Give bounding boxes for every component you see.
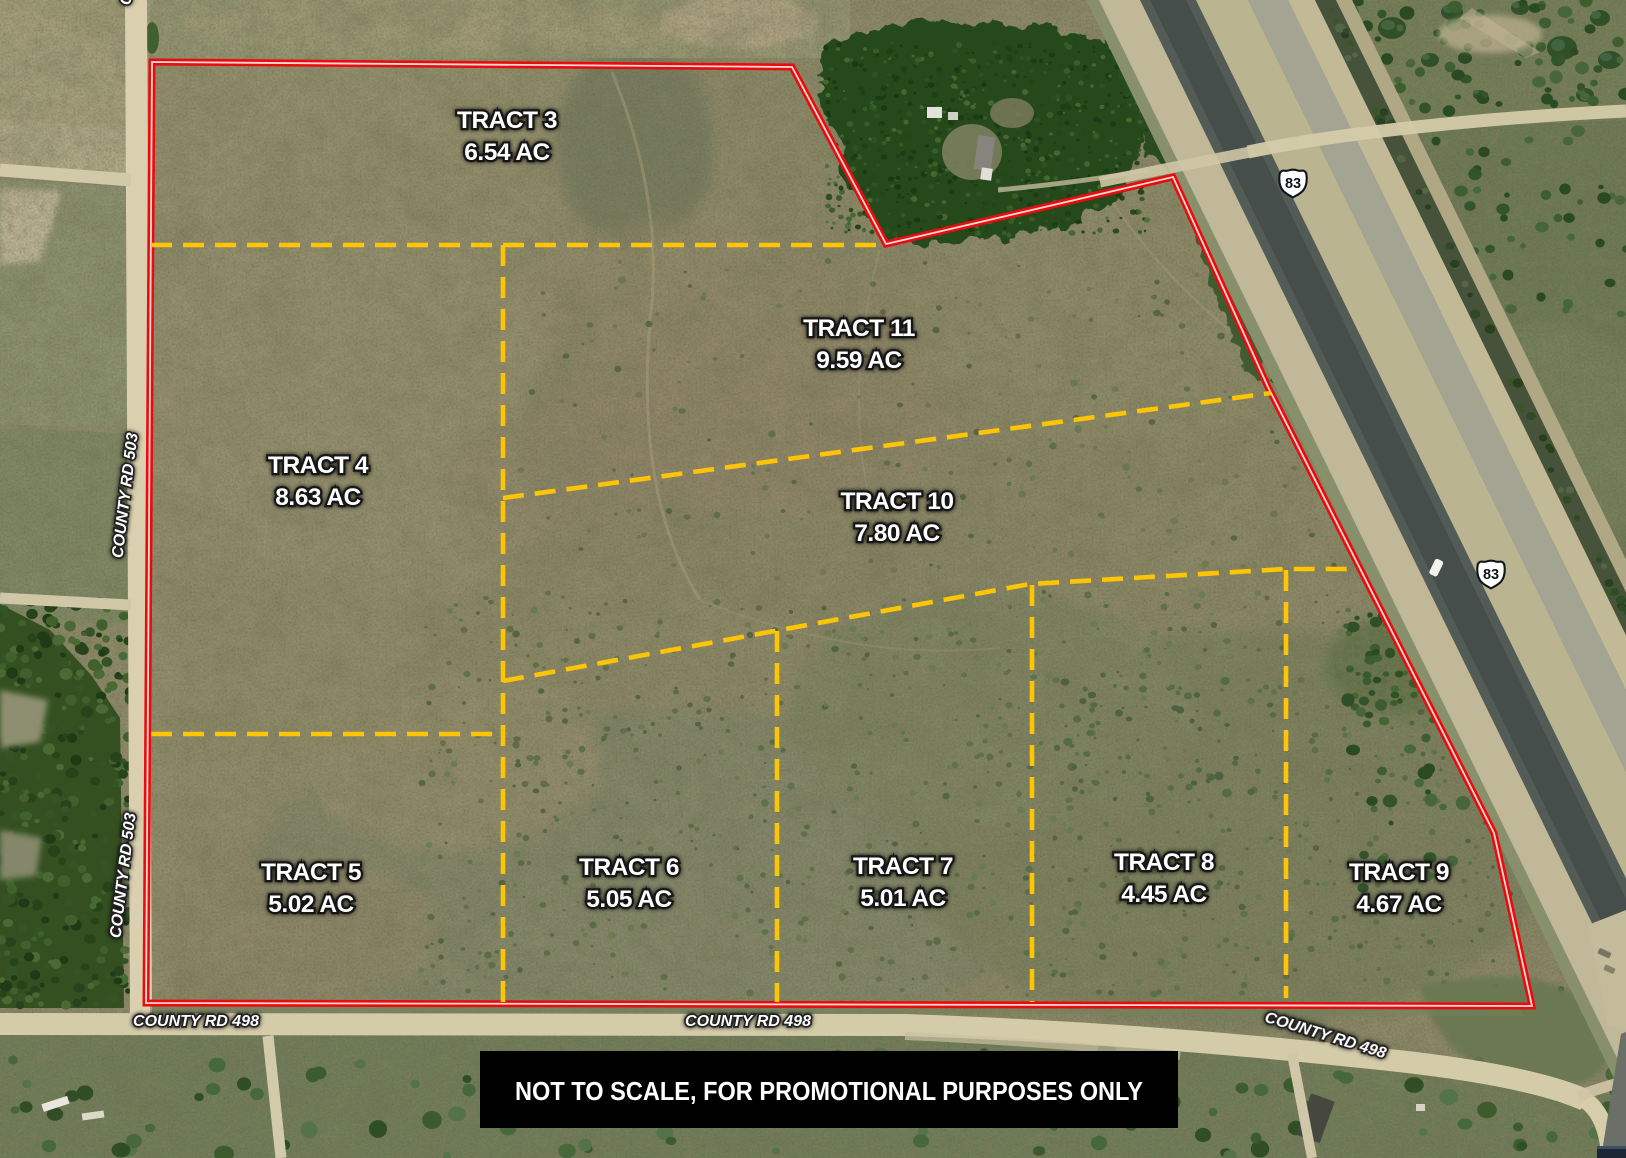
svg-text:TRACT 7: TRACT 7 [853, 853, 953, 880]
svg-text:TRACT 9: TRACT 9 [1349, 859, 1449, 886]
svg-text:5.05 AC: 5.05 AC [586, 886, 672, 913]
svg-text:7.80 AC: 7.80 AC [854, 520, 940, 547]
svg-text:9.59 AC: 9.59 AC [816, 347, 902, 374]
svg-text:6.54 AC: 6.54 AC [464, 139, 550, 166]
svg-text:5.02 AC: 5.02 AC [268, 891, 354, 918]
svg-text:TRACT 10: TRACT 10 [840, 488, 953, 515]
svg-text:TRACT 8: TRACT 8 [1114, 849, 1214, 876]
svg-text:NOT TO SCALE, FOR PROMOTIONAL: NOT TO SCALE, FOR PROMOTIONAL PURPOSES O… [515, 1076, 1143, 1106]
svg-text:83: 83 [1483, 567, 1499, 583]
svg-text:COUNTY RD 498: COUNTY RD 498 [685, 1013, 811, 1030]
svg-text:TRACT 3: TRACT 3 [457, 107, 557, 134]
svg-text:COUNTY RD 498: COUNTY RD 498 [133, 1013, 259, 1030]
svg-text:TRACT 11: TRACT 11 [803, 315, 915, 342]
svg-text:5.01 AC: 5.01 AC [860, 885, 946, 912]
svg-text:TRACT 6: TRACT 6 [579, 854, 679, 881]
svg-text:TRACT 5: TRACT 5 [261, 859, 361, 886]
svg-text:83: 83 [1285, 176, 1301, 192]
svg-text:TRACT 4: TRACT 4 [268, 452, 369, 479]
svg-text:8.63 AC: 8.63 AC [275, 484, 361, 511]
svg-text:4.67 AC: 4.67 AC [1356, 891, 1442, 918]
svg-text:4.45 AC: 4.45 AC [1121, 881, 1207, 908]
